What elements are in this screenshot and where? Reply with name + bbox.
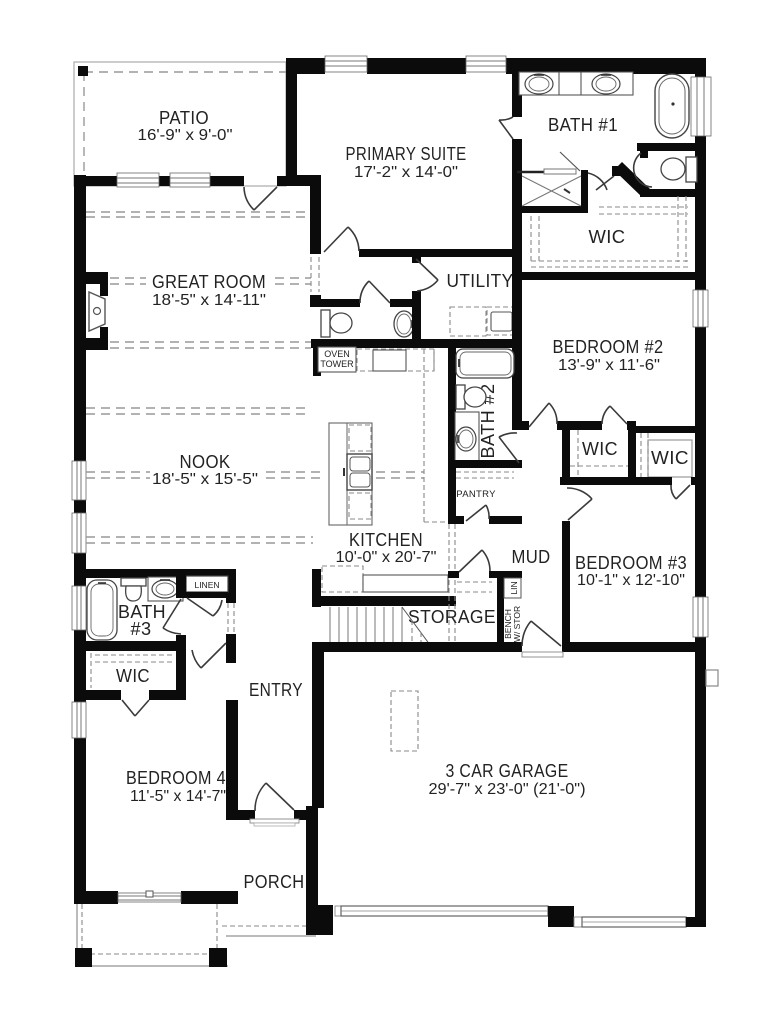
svg-text:MUD: MUD [512, 547, 551, 567]
svg-text:3 CAR GARAGE: 3 CAR GARAGE [446, 761, 569, 781]
svg-text:PRIMARY SUITE: PRIMARY SUITE [346, 144, 467, 164]
svg-text:W/ STOR: W/ STOR [512, 606, 522, 642]
svg-text:BEDROOM #2: BEDROOM #2 [553, 337, 664, 357]
svg-text:LIN: LIN [509, 581, 519, 594]
svg-text:BEDROOM 4: BEDROOM 4 [126, 768, 226, 788]
svg-text:WIC: WIC [582, 439, 618, 459]
svg-text:PORCH: PORCH [244, 872, 305, 892]
svg-text:WIC: WIC [116, 666, 150, 686]
svg-text:GREAT ROOM: GREAT ROOM [152, 272, 266, 292]
svg-text:10'-1" x 12'-10": 10'-1" x 12'-10" [577, 572, 685, 589]
svg-text:18'-5" x 14'-11": 18'-5" x 14'-11" [152, 292, 266, 309]
svg-text:WIC: WIC [589, 227, 626, 247]
svg-text:WIC: WIC [651, 448, 689, 468]
svg-text:ENTRY: ENTRY [249, 680, 303, 700]
svg-text:TOWER: TOWER [320, 359, 354, 369]
svg-text:BEDROOM #3: BEDROOM #3 [575, 553, 687, 573]
svg-text:UTILITY: UTILITY [447, 271, 514, 291]
svg-text:10'-0" x 20'-7": 10'-0" x 20'-7" [336, 549, 437, 566]
svg-text:KITCHEN: KITCHEN [349, 530, 423, 550]
svg-text:STORAGE: STORAGE [408, 607, 496, 627]
svg-text:18'-5" x 15'-5": 18'-5" x 15'-5" [152, 471, 258, 488]
svg-text:BATH #1: BATH #1 [548, 115, 618, 135]
svg-text:11'-5" x 14'-7": 11'-5" x 14'-7" [130, 788, 226, 805]
svg-text:#3: #3 [131, 619, 152, 639]
svg-text:OVEN: OVEN [324, 349, 350, 359]
svg-text:PATIO: PATIO [159, 108, 209, 128]
svg-text:16'-9" x 9'-0": 16'-9" x 9'-0" [138, 127, 233, 144]
svg-text:LINEN: LINEN [194, 580, 219, 590]
svg-text:29'-7" x 23'-0" (21'-0"): 29'-7" x 23'-0" (21'-0") [429, 781, 586, 798]
svg-text:13'-9" x 11'-6": 13'-9" x 11'-6" [558, 357, 660, 374]
svg-text:PANTRY: PANTRY [456, 489, 496, 500]
svg-text:17'-2" x 14'-0": 17'-2" x 14'-0" [354, 164, 458, 181]
